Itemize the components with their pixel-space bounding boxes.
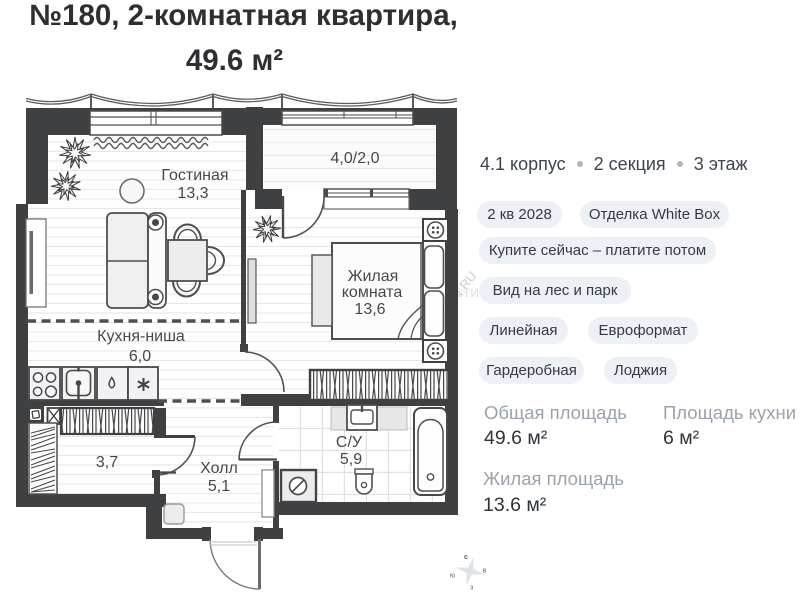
svg-text:Холл: Холл [200, 460, 238, 477]
svg-text:13,3: 13,3 [177, 185, 208, 202]
svg-text:с: с [464, 554, 468, 561]
svg-text:4,0/2,0: 4,0/2,0 [331, 150, 380, 167]
svg-text:3,7: 3,7 [96, 454, 118, 471]
svg-text:13,6: 13,6 [354, 301, 385, 318]
svg-text:ю: ю [450, 573, 455, 580]
svg-text:Гостиная: Гостиная [161, 167, 228, 184]
svg-text:6,0: 6,0 [129, 348, 151, 365]
svg-text:Жилая: Жилая [348, 268, 399, 285]
svg-text:в: в [483, 568, 487, 575]
svg-text:комната: комната [342, 284, 403, 301]
svg-text:Кухня-ниша: Кухня-ниша [97, 328, 185, 345]
svg-text:з: з [470, 585, 473, 592]
svg-text:5,9: 5,9 [340, 451, 362, 468]
svg-text:С/У: С/У [336, 434, 363, 451]
svg-text:5,1: 5,1 [208, 478, 230, 495]
